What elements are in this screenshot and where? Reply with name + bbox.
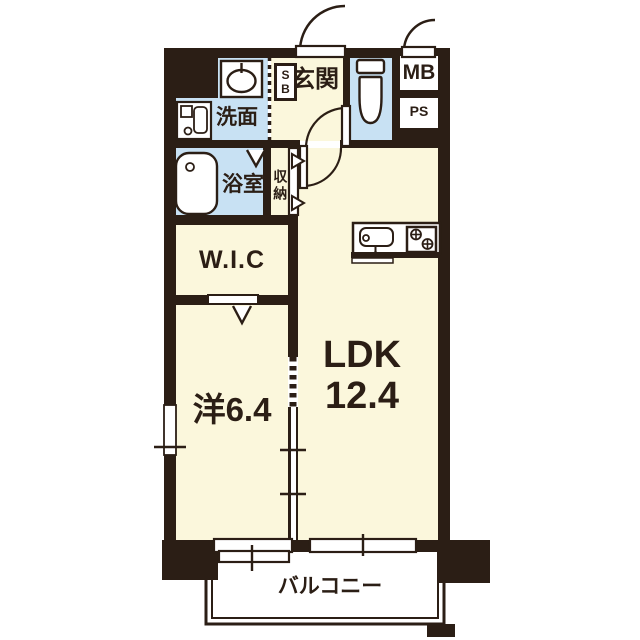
washing-machine-icon bbox=[221, 61, 262, 97]
wic-opening bbox=[208, 295, 258, 304]
label-ldk-name: LDK bbox=[300, 336, 424, 376]
kitchen-sink-icon bbox=[360, 228, 393, 246]
floorplan-canvas: 玄関 S B 洗面 浴室 収納 MB PS W.I.C 洋6.4 LDK 12.… bbox=[0, 0, 640, 640]
label-western-room: 洋6.4 bbox=[176, 393, 288, 428]
kitchen-base-strip bbox=[352, 258, 393, 263]
mb-door-leaf bbox=[402, 47, 435, 57]
wic-door-mark bbox=[233, 306, 251, 323]
label-pipe-space: PS bbox=[400, 104, 438, 119]
bathroom-door-mark bbox=[247, 150, 265, 166]
label-balcony: バルコニー bbox=[250, 576, 410, 598]
label-washroom: 洗面 bbox=[210, 107, 264, 129]
entrance-door-swing-icon bbox=[300, 6, 345, 51]
entrance-door-leaf bbox=[296, 46, 345, 57]
toilet-icon bbox=[357, 60, 384, 123]
label-wic: W.I.C bbox=[176, 247, 288, 273]
label-shoe-box-s: S bbox=[281, 68, 289, 82]
floorplan-symbols bbox=[0, 0, 640, 640]
window-west-bottom-b bbox=[219, 551, 289, 562]
shoe-box: S B bbox=[274, 63, 297, 101]
vanity-sink-icon bbox=[177, 102, 211, 139]
toilet-door-swing-icon bbox=[306, 108, 346, 148]
label-bathroom: 浴室 bbox=[216, 174, 270, 196]
label-storage: 収納 bbox=[273, 160, 288, 212]
stove-icon bbox=[407, 227, 436, 252]
label-meter-box: MB bbox=[400, 62, 438, 84]
kitchen-base-bar bbox=[351, 252, 440, 258]
ldk-door-swing-icon bbox=[303, 148, 341, 186]
label-shoe-box-b: B bbox=[281, 82, 290, 96]
label-ldk-size: 12.4 bbox=[300, 377, 424, 417]
ldk-door-leaf bbox=[300, 146, 307, 188]
bathtub-icon bbox=[176, 153, 217, 214]
toilet-door-leaf bbox=[342, 106, 350, 146]
